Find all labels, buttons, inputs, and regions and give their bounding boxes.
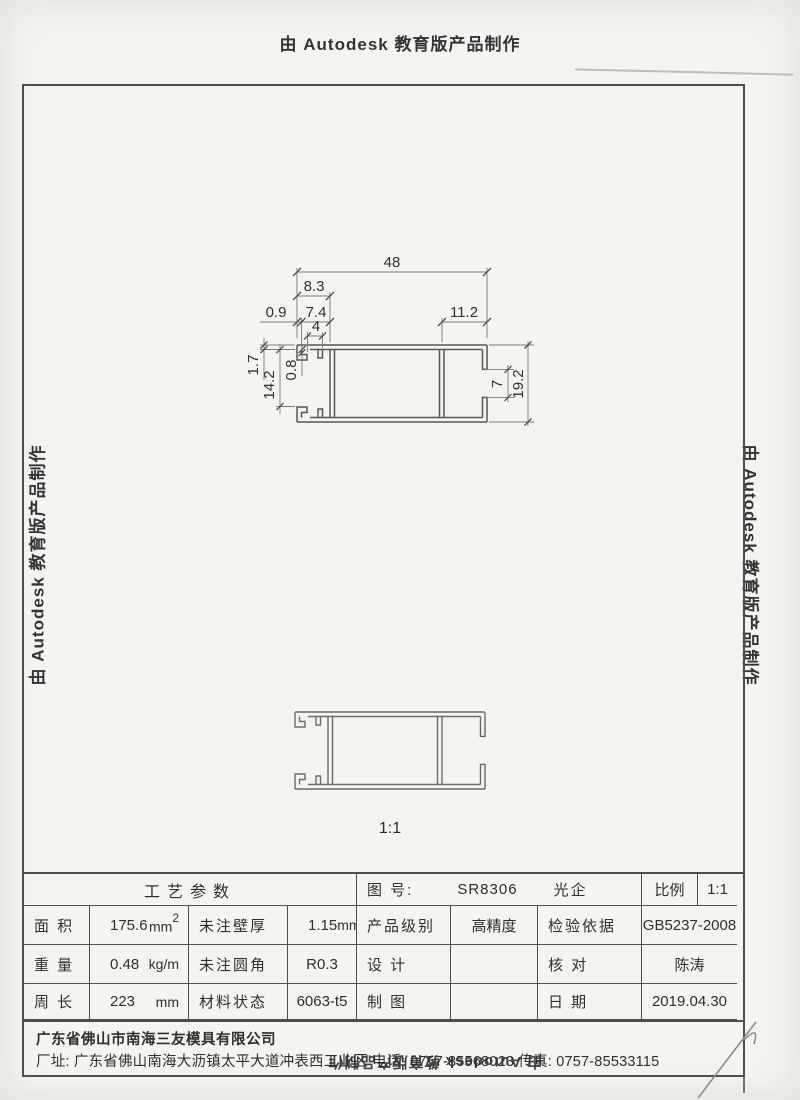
dimensioned-profile-view: 48 8.3 0.9 7.4 4 11.2 1.7 14.2 0.8 7 19.… [232,248,552,448]
title-block-table: 工艺参数 图 号: SR8306 光企 比例 1:1 面 积 175.6 mm2… [22,872,745,1022]
weight-unit: kg/m [149,956,179,972]
scan-fold-line [575,68,793,75]
inspection-basis-label: 检验依据 [538,906,642,945]
scanned-drawing-sheet: 由 Autodesk 教育版产品制作 由 Autodesk 教育版产品制作 由 … [0,0,800,1100]
drawing-number-value: SR8306 [457,881,517,898]
dim-overall-height: 19.2 [510,369,527,398]
scale-value-cell: 1:1 [698,874,737,906]
company-info-box: 广东省佛山市南海三友模具有限公司 厂址: 广东省佛山南海大沥镇太平大道冲表西工业… [22,1022,745,1077]
inspection-basis-value: GB5237-2008 [642,906,737,945]
dim-left-height: 14.2 [261,370,278,399]
process-params-header: 工艺参数 [24,874,357,906]
dim-lip-width: 0.9 [266,304,287,321]
design-label: 设 计 [357,945,451,984]
area-unit: mm2 [149,915,179,935]
perimeter-label: 周 长 [24,984,90,1020]
perimeter-cell: 223 mm [90,984,189,1020]
design-value [451,945,538,984]
material-state-label: 材料状态 [189,984,288,1020]
company-name: 广东省佛山市南海三友模具有限公司 [36,1028,276,1049]
drawing-number-cell: 图 号: SR8306 光企 [357,874,642,906]
weight-label: 重 量 [24,945,90,984]
area-label: 面 积 [24,906,90,945]
wall-thickness-value: 1.15 [308,917,337,934]
profile-outline [297,345,487,422]
wall-thickness-cell: 1.15 mm [288,906,357,945]
dim-overall-width: 48 [384,254,401,271]
dim-flange-thickness: 1.7 [245,355,262,376]
dim-channel-depth: 11.2 [450,304,478,321]
company-address: 厂址: 广东省佛山南海大沥镇太平大道冲表西工业区 电话: 0757-855680… [36,1050,659,1071]
fillet-value: R0.3 [288,945,357,984]
area-value-cell: 175.6 mm2 [90,906,189,945]
drawing-number-label: 图 号: [357,879,413,900]
perimeter-value: 223 [110,993,135,1010]
product-name: 光企 [554,879,588,900]
check-label: 核 对 [538,945,642,984]
scale-note: 1:1 [360,820,420,838]
perimeter-unit: mm [156,994,179,1010]
date-label: 日 期 [538,984,642,1020]
material-state-value: 6063-t5 [288,984,357,1020]
scale-profile-view [230,702,550,812]
weight-value: 0.48 [110,956,139,973]
dim-channel-opening: 7 [489,380,506,388]
dim-hook-section-width: 8.3 [304,278,325,295]
dimension-lines [260,268,534,426]
autodesk-watermark-top: 由 Autodesk 教育版产品制作 [0,30,800,55]
fillet-label: 未注圆角 [189,945,288,984]
product-grade-value: 高精度 [451,906,538,945]
dim-web-thickness: 0.8 [283,360,300,381]
scale-label-cell: 比例 [642,874,698,906]
draft-value [451,984,538,1020]
dim-stub-gap: 4 [312,318,320,335]
area-value: 175.6 [110,917,148,934]
check-value: 陈涛 [642,945,737,984]
profile-outline-1to1 [295,712,485,789]
page-curl-artifact [690,1008,800,1100]
wall-thickness-label: 未注壁厚 [189,906,288,945]
product-grade-label: 产品级别 [357,906,451,945]
wall-thickness-unit: mm [337,917,357,933]
draft-label: 制 图 [357,984,451,1020]
weight-cell: 0.48 kg/m [90,945,189,984]
